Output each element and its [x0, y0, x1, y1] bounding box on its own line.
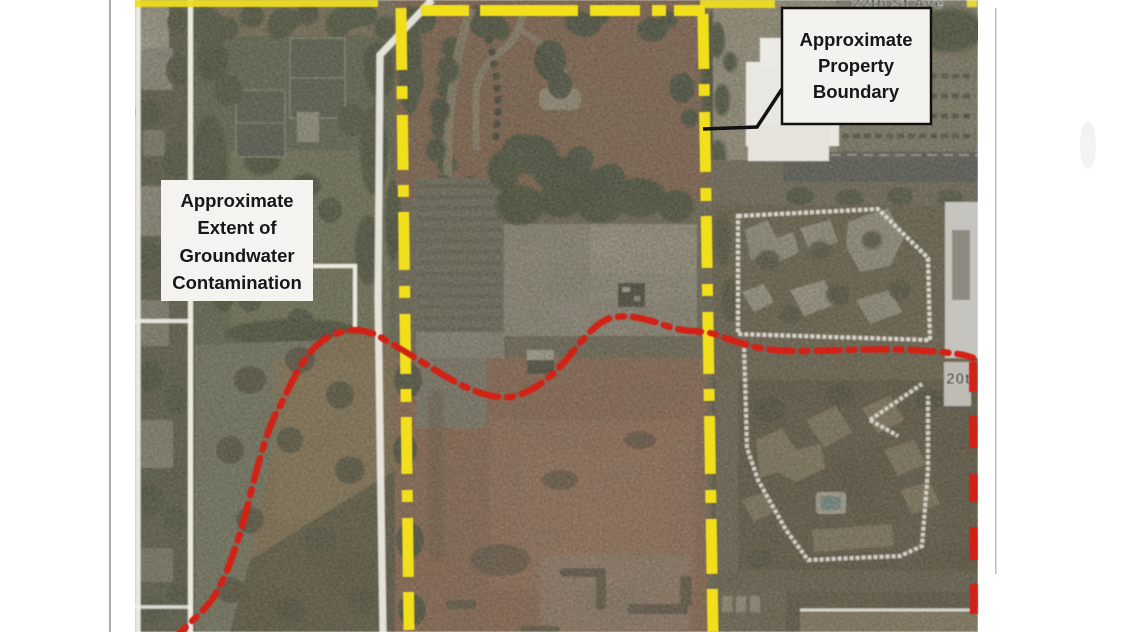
svg-text:Property: Property: [818, 55, 895, 76]
svg-text:Groundwater: Groundwater: [179, 245, 294, 266]
svg-text:Contamination: Contamination: [172, 272, 302, 293]
svg-text:Approximate: Approximate: [180, 190, 293, 211]
svg-text:Boundary: Boundary: [813, 81, 900, 102]
svg-text:20t: 20t: [946, 371, 971, 388]
svg-text:Extent of: Extent of: [197, 217, 277, 238]
svg-text:Approximate: Approximate: [799, 29, 912, 50]
